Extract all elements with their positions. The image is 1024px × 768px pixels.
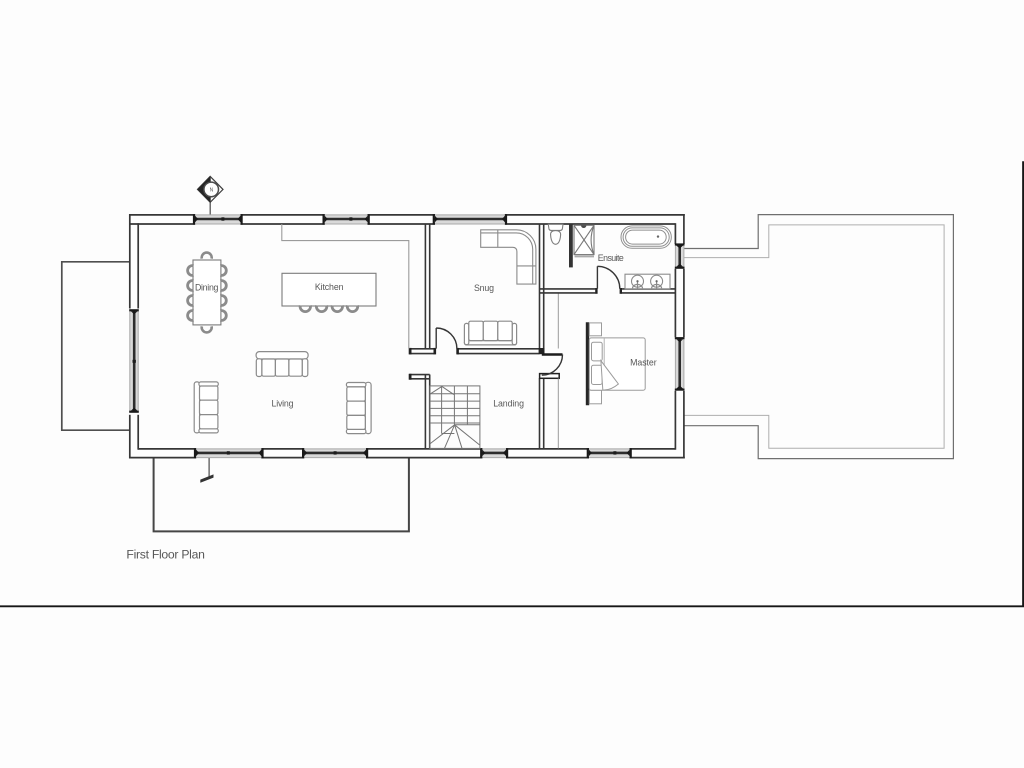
svg-text:Master: Master xyxy=(630,357,657,367)
svg-text:Snug: Snug xyxy=(474,283,494,293)
svg-text:Ensuite: Ensuite xyxy=(598,253,624,263)
svg-text:First Floor Plan: First Floor Plan xyxy=(126,548,204,562)
svg-text:Living: Living xyxy=(272,399,294,409)
svg-text:N: N xyxy=(210,188,214,194)
svg-text:Landing: Landing xyxy=(493,398,524,408)
svg-text:Dining: Dining xyxy=(195,283,219,293)
svg-text:Kitchen: Kitchen xyxy=(315,282,344,292)
